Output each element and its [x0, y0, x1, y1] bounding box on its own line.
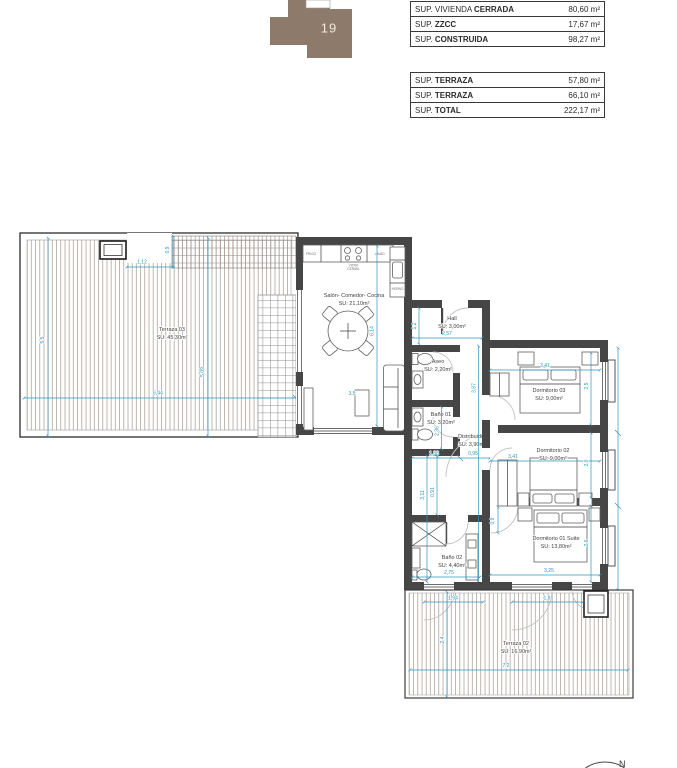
room-name: Dormitorio 03 [532, 388, 565, 394]
bath2-counter [466, 534, 478, 580]
room-area: SU: 2,20m² [424, 367, 452, 373]
terraza-02-room: Terraza 02 SU: 16,90m² 7,2 1,94 1,8 2,4 [405, 590, 633, 698]
svg-text:6,14: 6,14 [370, 326, 376, 336]
room-name: Baño 01 [431, 412, 452, 418]
room-area: SU: 21,10m² [339, 301, 370, 307]
svg-text:3,11: 3,11 [420, 490, 426, 500]
svg-text:3,87: 3,87 [472, 383, 478, 393]
svg-text:1,8: 1,8 [544, 596, 551, 602]
nightstand [579, 493, 592, 506]
north-compass: N [571, 759, 639, 768]
room-area: SU: 3,20m² [427, 420, 455, 426]
room-name: Distribuidor [458, 434, 486, 440]
room-area: SU: 3,00m² [438, 324, 466, 330]
room-area: SU: 16,90m² [501, 649, 532, 655]
room-name: Dormitorio 02 [536, 448, 569, 454]
svg-text:1,38: 1,38 [429, 451, 439, 457]
nightstand [518, 352, 534, 365]
nightstand [582, 352, 598, 365]
svg-text:5,09: 5,09 [200, 367, 206, 377]
coffee-table [355, 390, 369, 416]
hall-wet-column: Aseo SU: 2,20m² Baño 01 SU: 3,20m² Distr… [404, 300, 490, 590]
room-area: SU: 45,30m² [157, 335, 188, 341]
nightstand [518, 508, 532, 521]
aseo-washbasin-icon [412, 371, 423, 388]
room-name: Terraza 02 [503, 641, 529, 647]
oven-icon [393, 262, 403, 278]
svg-text:0,9: 0,9 [490, 517, 496, 524]
svg-text:2,6: 2,6 [584, 539, 590, 546]
window-left-2 [296, 386, 303, 424]
sofa [384, 365, 405, 431]
floor-plan-sheet: SUP. VIVIENDA CERRADA 80,60 m² SUP. ZZCC… [0, 0, 677, 768]
bath2-washbasin-icon [412, 548, 420, 568]
oven-label: HORNO [392, 287, 404, 291]
room-name: Baño 02 [442, 555, 463, 561]
room-name: Terraza 03 [159, 327, 185, 333]
unit-keyplan-logo: 19 [270, 0, 352, 58]
dishwasher-label: LAVAD. [375, 252, 386, 256]
room-name: Hall [447, 316, 456, 322]
north-label: N [619, 759, 626, 768]
room-name: Salón- Comedor- Cocina [324, 293, 385, 299]
svg-text:6,44: 6,44 [153, 391, 163, 397]
svg-text:2,5: 2,5 [584, 382, 590, 389]
room-name: Aseo [432, 359, 445, 365]
svg-text:2,0: 2,0 [584, 459, 590, 466]
keyplan-notch [306, 0, 330, 8]
svg-text:0,91: 0,91 [430, 487, 436, 497]
pergola-strip [172, 236, 296, 268]
window-dorm03 [600, 360, 615, 402]
svg-text:2,57: 2,57 [442, 331, 452, 337]
fridge-label: FRIGO [306, 252, 317, 256]
window-dorm02 [600, 450, 615, 490]
bath1-washbasin-icon [412, 408, 423, 426]
svg-text:3,41: 3,41 [508, 454, 518, 460]
svg-text:3,41: 3,41 [540, 363, 550, 369]
salon-comedor-cocina-room: FRIGO LAVAD. VITRO CERAM. HORNO [296, 237, 412, 435]
svg-text:0,95: 0,95 [468, 451, 478, 457]
svg-text:2,4: 2,4 [440, 636, 446, 643]
svg-text:3,25: 3,25 [544, 568, 554, 574]
svg-text:0,9: 0,9 [165, 246, 171, 253]
bath1-toilet-icon [412, 429, 433, 440]
room-area: SU: 9,00m² [535, 396, 563, 402]
tv-unit [304, 388, 313, 430]
room-name: Dormitorio 01 Suite [532, 536, 579, 542]
room-area: SU: 3,90m² [458, 442, 486, 448]
aseo-toilet-icon [412, 354, 433, 365]
shower-icon [412, 522, 446, 546]
nightstand [518, 493, 529, 506]
compass-circle [571, 762, 639, 768]
svg-text:5,5: 5,5 [40, 336, 46, 343]
svg-text:2,75: 2,75 [444, 570, 454, 576]
room-area: SU: 4,40m² [438, 563, 466, 569]
window-left-1 [296, 290, 303, 372]
unit-number: 19 [321, 21, 337, 36]
svg-text:1,94: 1,94 [448, 596, 458, 602]
room-area: SU: 13,80m² [541, 544, 572, 550]
window-dorm01 [600, 526, 615, 566]
floor-plan-drawing: 19 Terraza 03 SU: 45,30m² 5,5 5,09 6,44 [0, 0, 677, 768]
svg-text:2,36: 2,36 [435, 426, 441, 436]
svg-text:1,12: 1,12 [137, 260, 147, 266]
svg-text:3,5: 3,5 [349, 391, 356, 397]
hob-label-2: CERAM. [347, 267, 360, 271]
bath2-toilet-icon [412, 569, 431, 580]
svg-text:7,2: 7,2 [503, 663, 510, 669]
dining-table [322, 306, 375, 357]
svg-text:1,2: 1,2 [412, 322, 418, 329]
